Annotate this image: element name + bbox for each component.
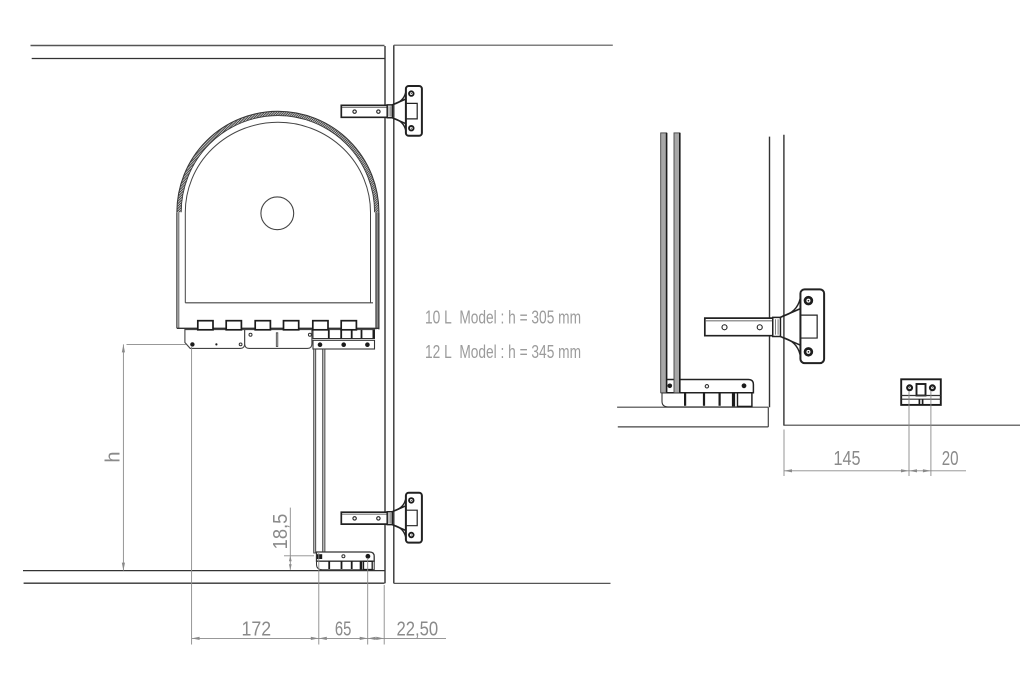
svg-text:18,5: 18,5: [270, 514, 292, 550]
svg-text:22,50: 22,50: [396, 618, 438, 640]
svg-text:12 L Model : h = 345 mm: 12 L Model : h = 345 mm: [425, 341, 581, 362]
svg-text:10 L Model : h = 305 mm: 10 L Model : h = 305 mm: [425, 307, 581, 328]
svg-text:172: 172: [242, 618, 272, 640]
svg-text:20: 20: [942, 448, 959, 470]
svg-text:145: 145: [833, 448, 860, 470]
svg-text:h: h: [102, 451, 124, 462]
svg-text:65: 65: [335, 618, 352, 640]
